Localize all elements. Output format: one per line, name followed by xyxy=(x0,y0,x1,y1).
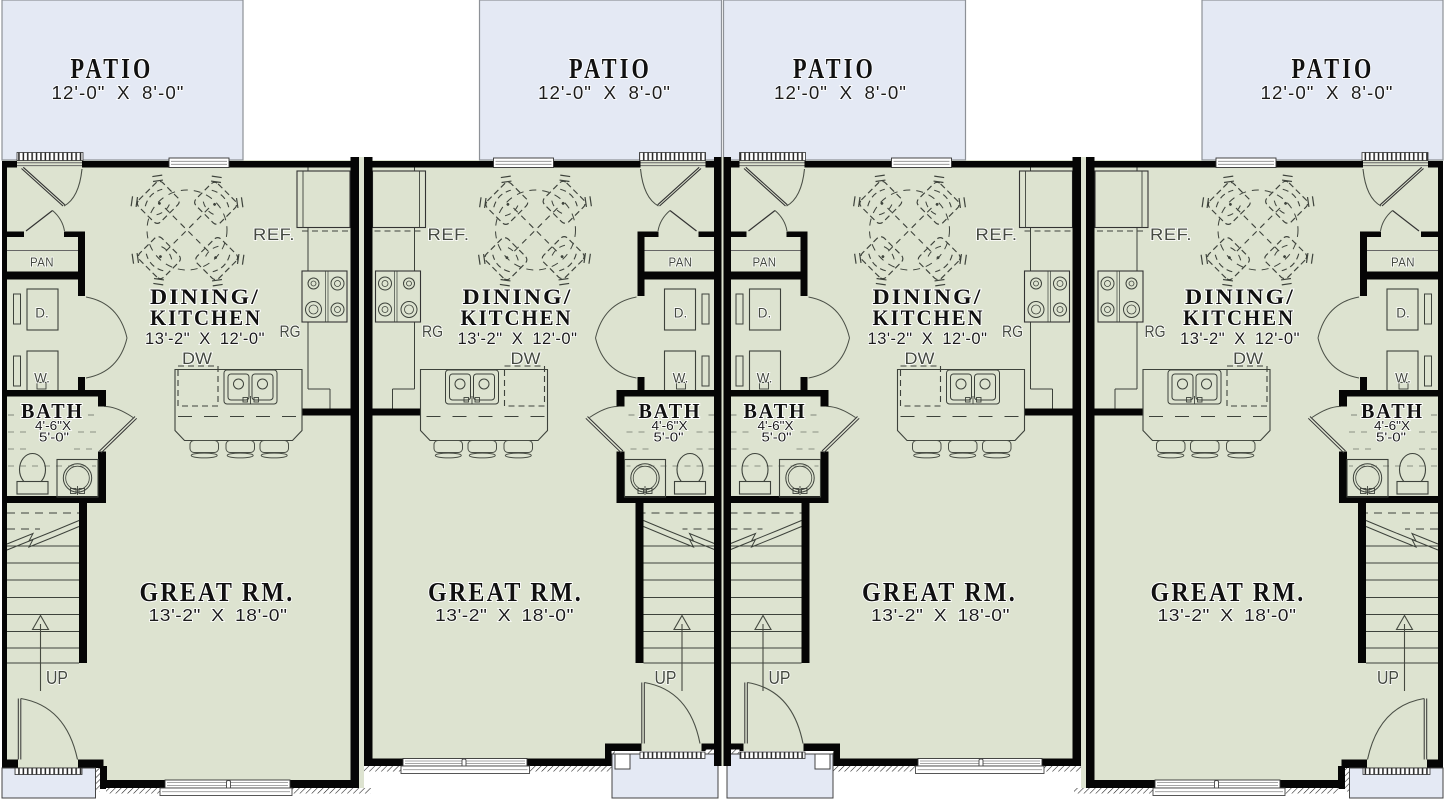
svg-text:PAN: PAN xyxy=(669,255,693,270)
svg-text:5'-0": 5'-0" xyxy=(654,430,684,445)
svg-text:W.: W. xyxy=(1395,371,1411,386)
svg-text:REF.: REF. xyxy=(428,225,470,244)
svg-text:REF.: REF. xyxy=(1150,225,1192,244)
svg-text:13'-2" X 18'-0": 13'-2" X 18'-0" xyxy=(1158,605,1297,625)
svg-text:KITCHEN: KITCHEN xyxy=(150,305,262,330)
svg-text:12'-0" X 8'-0": 12'-0" X 8'-0" xyxy=(538,83,671,103)
svg-text:5'-0": 5'-0" xyxy=(39,430,69,445)
svg-text:UP: UP xyxy=(1377,668,1399,688)
svg-text:13'-2" X 12'-0": 13'-2" X 12'-0" xyxy=(868,330,988,348)
svg-text:13'-2" X 18'-0": 13'-2" X 18'-0" xyxy=(871,605,1010,625)
svg-text:D.: D. xyxy=(758,306,772,321)
svg-text:W.: W. xyxy=(34,371,50,386)
svg-text:PATIO: PATIO xyxy=(569,54,652,85)
svg-text:5'-0": 5'-0" xyxy=(762,430,792,445)
svg-text:RG: RG xyxy=(1145,322,1166,341)
svg-text:W.: W. xyxy=(757,371,773,386)
svg-text:12'-0" X 8'-0": 12'-0" X 8'-0" xyxy=(1261,83,1394,103)
svg-text:GREAT RM.: GREAT RM. xyxy=(1151,577,1306,607)
svg-text:KITCHEN: KITCHEN xyxy=(873,305,985,330)
svg-text:12'-0" X 8'-0": 12'-0" X 8'-0" xyxy=(774,83,907,103)
svg-text:RG: RG xyxy=(1002,322,1023,341)
svg-text:5'-0": 5'-0" xyxy=(1376,430,1406,445)
svg-text:D.: D. xyxy=(35,306,49,321)
svg-text:REF.: REF. xyxy=(976,225,1018,244)
svg-text:PAN: PAN xyxy=(753,255,777,270)
svg-text:KITCHEN: KITCHEN xyxy=(461,305,573,330)
svg-text:PATIO: PATIO xyxy=(793,54,876,85)
svg-text:13'-2" X 18'-0": 13'-2" X 18'-0" xyxy=(435,605,574,625)
svg-text:GREAT RM.: GREAT RM. xyxy=(862,577,1017,607)
svg-text:DW: DW xyxy=(1233,349,1263,368)
svg-text:PATIO: PATIO xyxy=(1292,54,1375,85)
svg-text:RG: RG xyxy=(280,322,301,341)
svg-text:KITCHEN: KITCHEN xyxy=(1183,305,1295,330)
svg-text:DW: DW xyxy=(511,349,541,368)
svg-text:13'-2" X 12'-0": 13'-2" X 12'-0" xyxy=(458,330,578,348)
svg-text:GREAT RM.: GREAT RM. xyxy=(428,577,583,607)
svg-text:UP: UP xyxy=(769,668,791,688)
svg-text:12'-0" X 8'-0": 12'-0" X 8'-0" xyxy=(52,83,185,103)
svg-text:DW: DW xyxy=(182,349,212,368)
svg-text:RG: RG xyxy=(422,322,443,341)
svg-text:13'-2" X 12'-0": 13'-2" X 12'-0" xyxy=(145,330,265,348)
svg-text:REF.: REF. xyxy=(253,225,295,244)
svg-text:PAN: PAN xyxy=(1391,255,1415,270)
svg-text:PAN: PAN xyxy=(30,255,54,270)
svg-text:13'-2" X 18'-0": 13'-2" X 18'-0" xyxy=(149,605,288,625)
svg-text:GREAT RM.: GREAT RM. xyxy=(140,577,295,607)
svg-text:D.: D. xyxy=(1396,306,1410,321)
svg-text:UP: UP xyxy=(655,668,677,688)
svg-text:UP: UP xyxy=(46,668,68,688)
svg-text:D.: D. xyxy=(674,306,688,321)
svg-text:W.: W. xyxy=(673,371,689,386)
svg-text:DW: DW xyxy=(905,349,935,368)
svg-text:PATIO: PATIO xyxy=(71,54,154,85)
svg-text:13'-2" X 12'-0": 13'-2" X 12'-0" xyxy=(1180,330,1300,348)
